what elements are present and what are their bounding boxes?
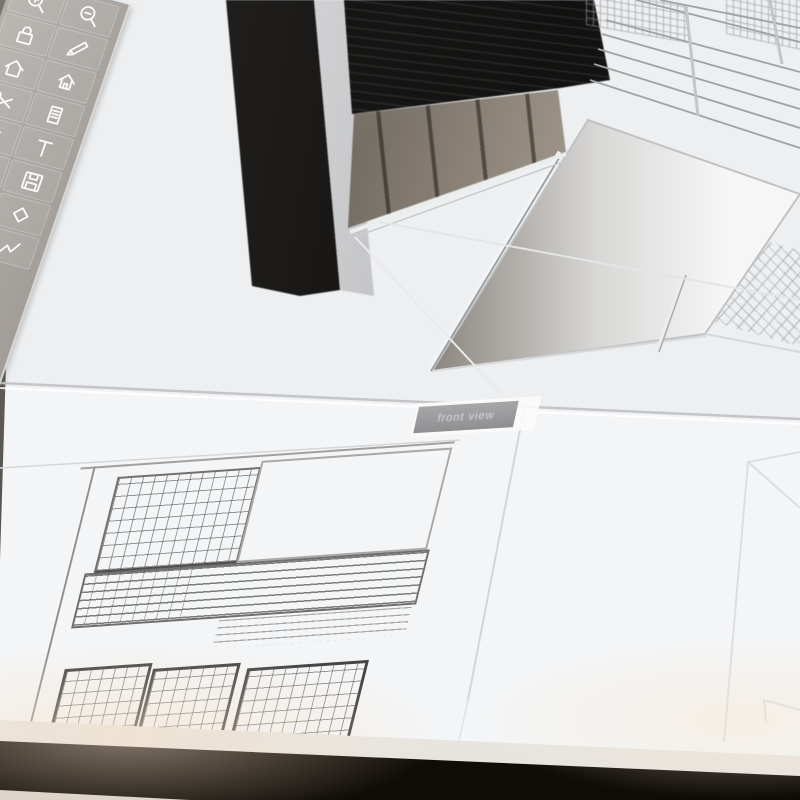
shape-icon (4, 199, 38, 230)
house-icon (50, 66, 84, 97)
scissors-icon (0, 85, 20, 116)
elevation-upper-window-grid (93, 467, 261, 575)
elevation-louver-grid-overlay (72, 565, 202, 624)
save-icon (15, 166, 49, 197)
pencil-icon (61, 33, 95, 64)
home-icon (0, 52, 31, 83)
lock-icon (9, 19, 43, 50)
elevation-upper-blank-panel (236, 448, 452, 563)
app-screen: front view (0, 0, 800, 800)
polyline-icon (0, 232, 26, 263)
settings-icon (0, 118, 8, 149)
zoom-out-icon (73, 0, 107, 31)
text-icon (27, 132, 61, 163)
document-icon (38, 99, 72, 130)
wireframe-railing-mesh-bottom (694, 220, 800, 348)
zoom-in-icon (20, 0, 54, 17)
wireframe-railing-mesh-right (726, 0, 800, 50)
